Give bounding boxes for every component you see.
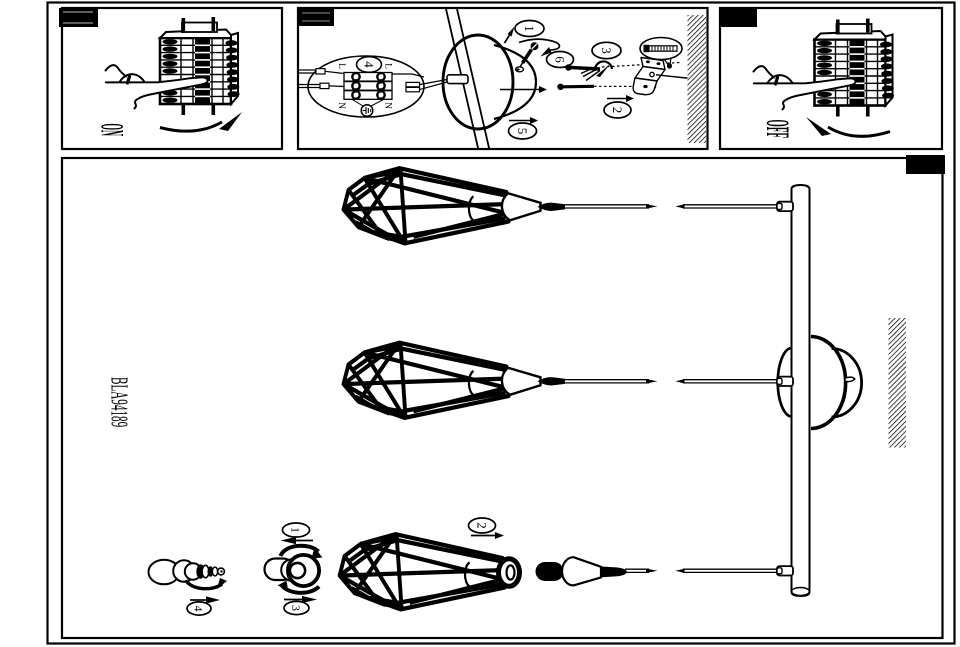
svg-text:L: L xyxy=(383,63,393,69)
svg-text:2: 2 xyxy=(610,107,625,114)
svg-text:2: 2 xyxy=(474,522,489,529)
svg-text:6: 6 xyxy=(552,56,567,63)
svg-text:4: 4 xyxy=(361,61,376,68)
svg-text:BLA94189: BLA94189 xyxy=(105,377,132,427)
svg-text:1: 1 xyxy=(522,25,537,32)
svg-text:1: 1 xyxy=(289,527,303,533)
svg-text:OFF: OFF xyxy=(759,120,796,139)
svg-text:4: 4 xyxy=(192,606,206,612)
svg-text:5: 5 xyxy=(515,128,530,135)
svg-text:3: 3 xyxy=(599,47,614,54)
svg-text:N: N xyxy=(336,102,346,109)
svg-text:N: N xyxy=(383,102,393,109)
svg-text:L: L xyxy=(336,63,346,69)
svg-text:3: 3 xyxy=(289,605,303,611)
svg-text:ON: ON xyxy=(93,124,129,137)
